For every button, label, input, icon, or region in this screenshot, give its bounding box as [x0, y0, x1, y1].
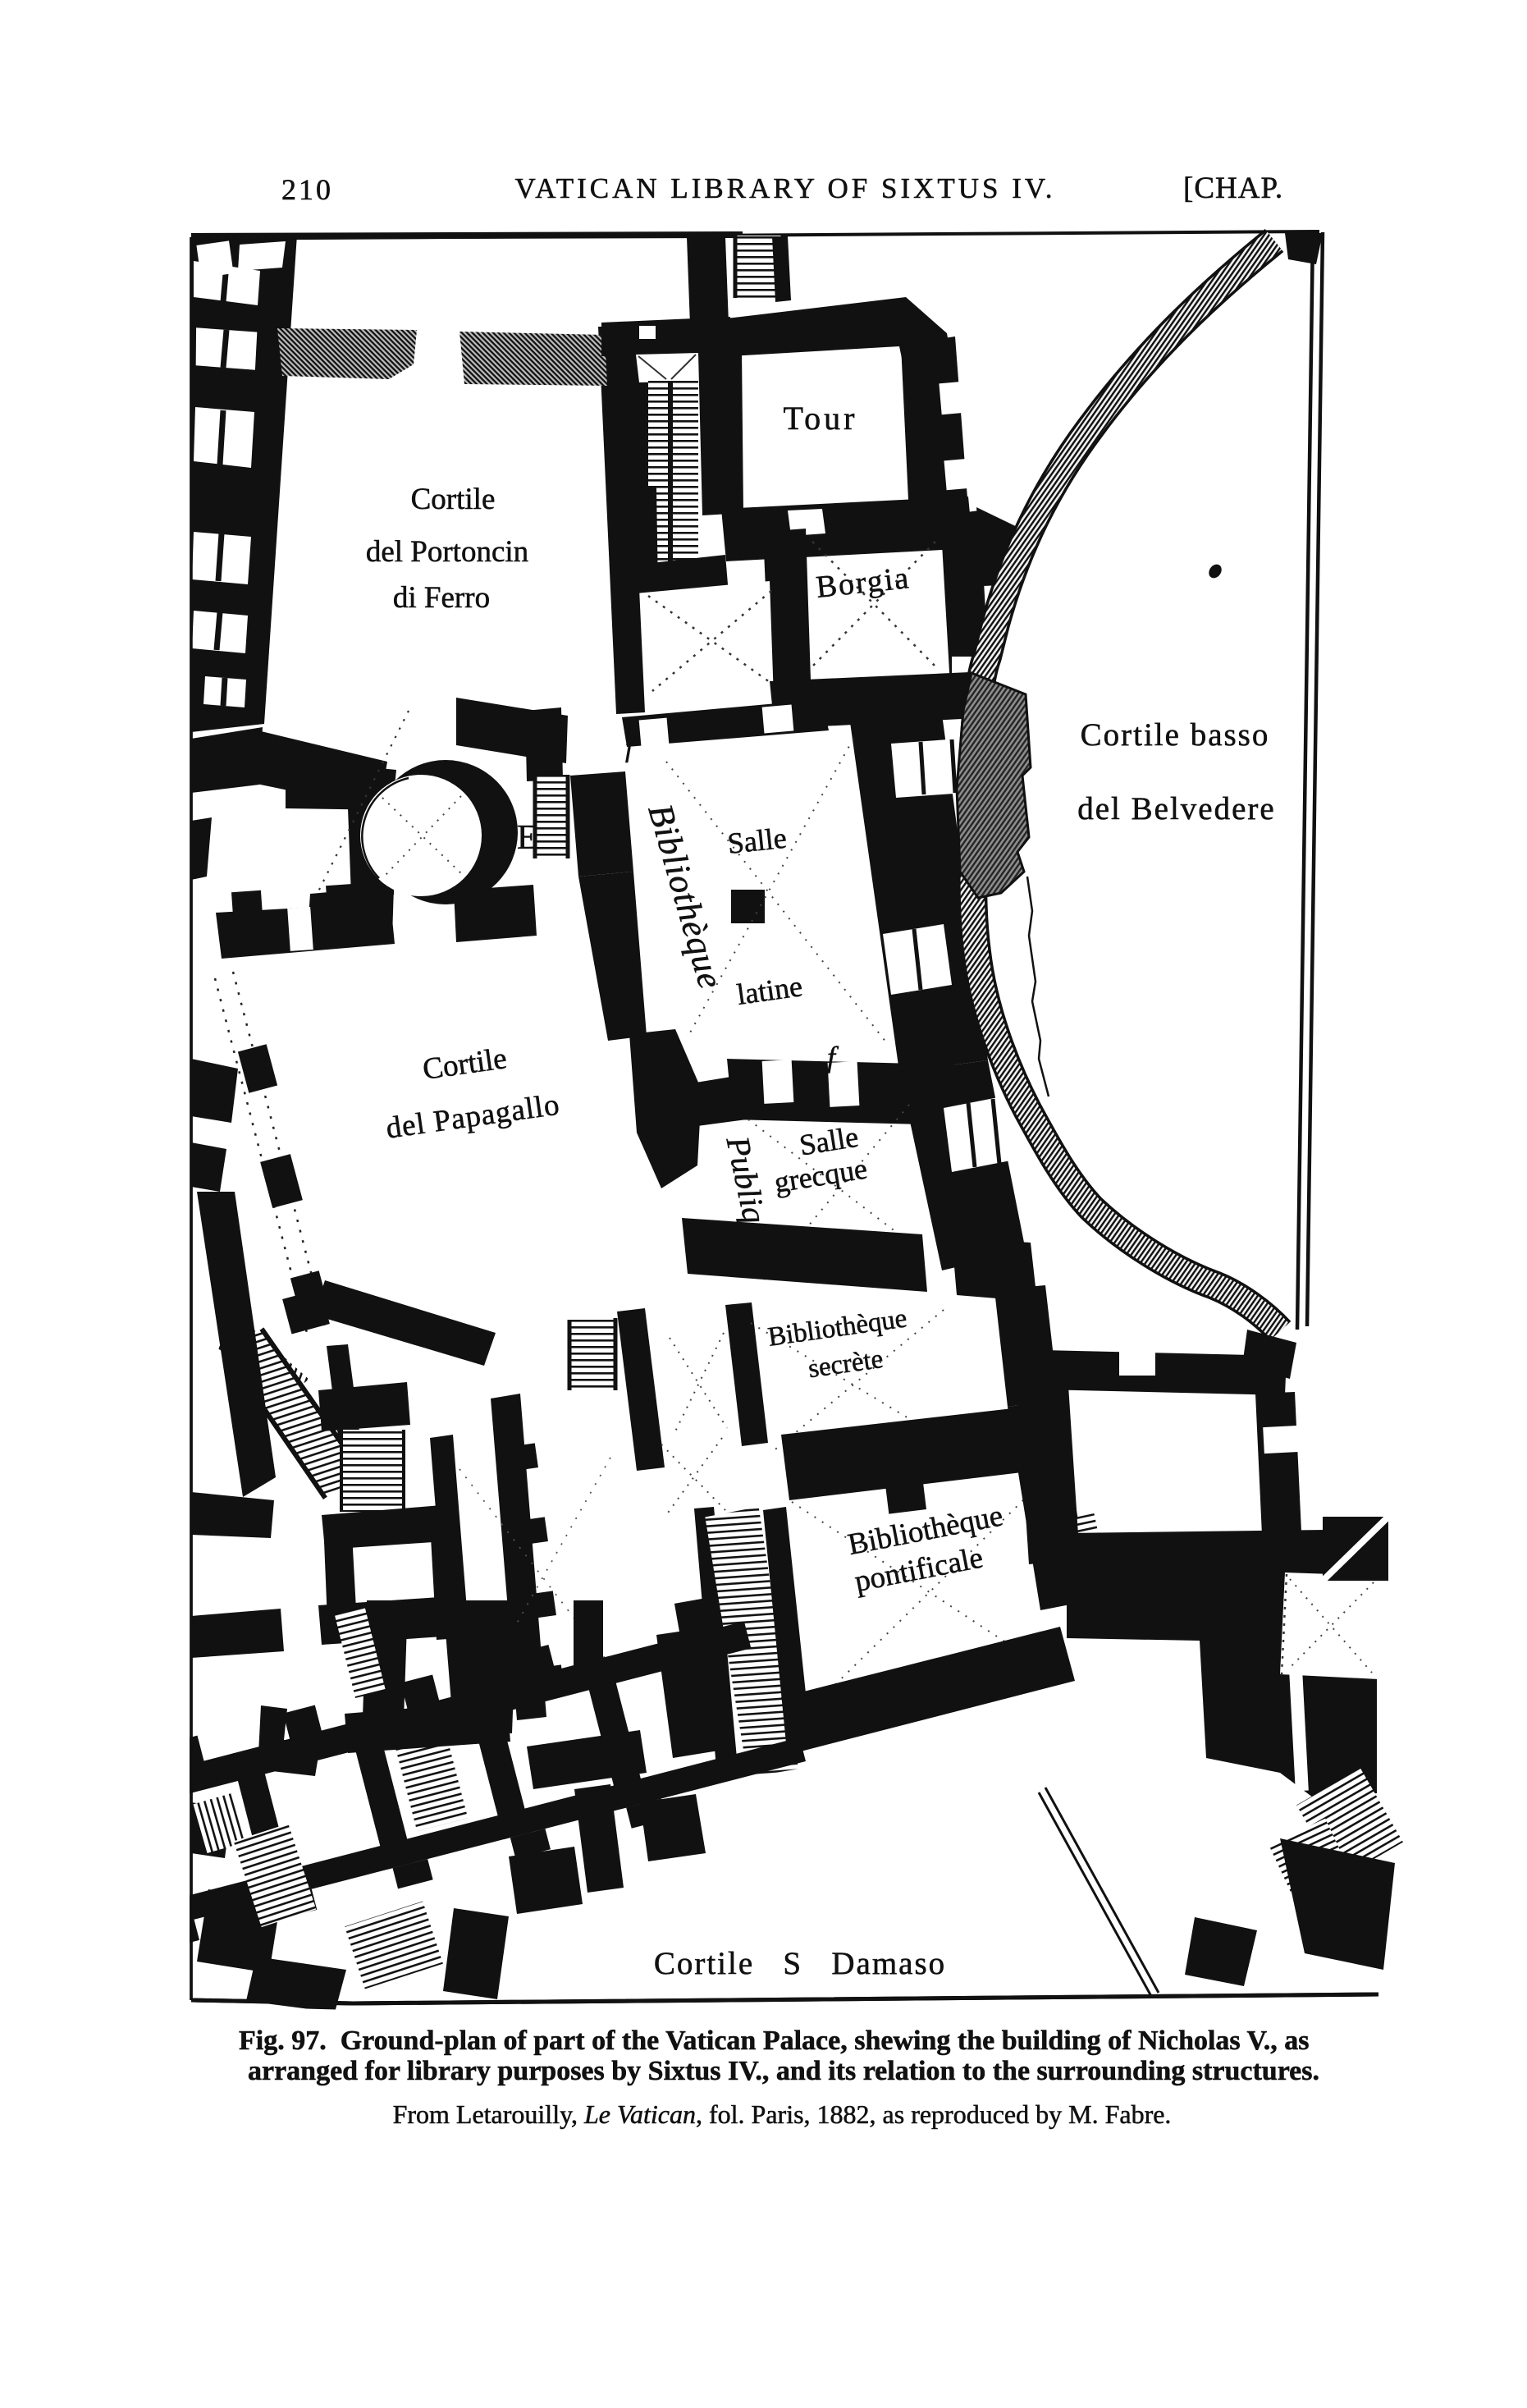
svg-text:latine: latine [735, 969, 805, 1011]
svg-text:Tour: Tour [784, 400, 858, 437]
svg-text:Salle: Salle [726, 822, 789, 860]
svg-text:Borgia: Borgia [815, 561, 912, 605]
svg-text:del Belvedere: del Belvedere [1077, 791, 1275, 826]
svg-text:Bibliothèque: Bibliothèque [640, 800, 729, 994]
svg-text:secrète: secrète [807, 1344, 885, 1384]
svg-text:210: 210 [281, 173, 333, 206]
svg-text:di Ferro: di Ferro [393, 581, 490, 615]
svg-text:grecque: grecque [772, 1151, 870, 1198]
svg-text:Cortile: Cortile [421, 1041, 509, 1087]
svg-text:[CHAP.: [CHAP. [1183, 172, 1283, 205]
svg-text:del Papagallo: del Papagallo [384, 1087, 562, 1145]
svg-text:Fig. 97. Ground-plan of part: Fig. 97. Ground-plan of part of the Vati… [239, 2026, 1309, 2056]
svg-text:VATICAN LIBRARY OF SIXTUS: VATICAN LIBRARY OF SIXTUS IV. [515, 172, 1056, 204]
svg-text:del Portoncin: del Portoncin [366, 535, 528, 569]
svg-text:Bibliothèque: Bibliothèque [766, 1303, 909, 1352]
svg-text:Cortile basso: Cortile basso [1081, 717, 1270, 753]
svg-text:arranged for library purposes: arranged for library purposes by Sixtus … [248, 2056, 1319, 2086]
svg-text:Cortile: Cortile [411, 483, 496, 516]
svg-text:From Letarouilly, Le Vatican,: From Letarouilly, Le Vatican, fol. Paris… [393, 2099, 1172, 2129]
svg-text:Cortile S Damaso: Cortile S Damaso [654, 1946, 946, 1981]
